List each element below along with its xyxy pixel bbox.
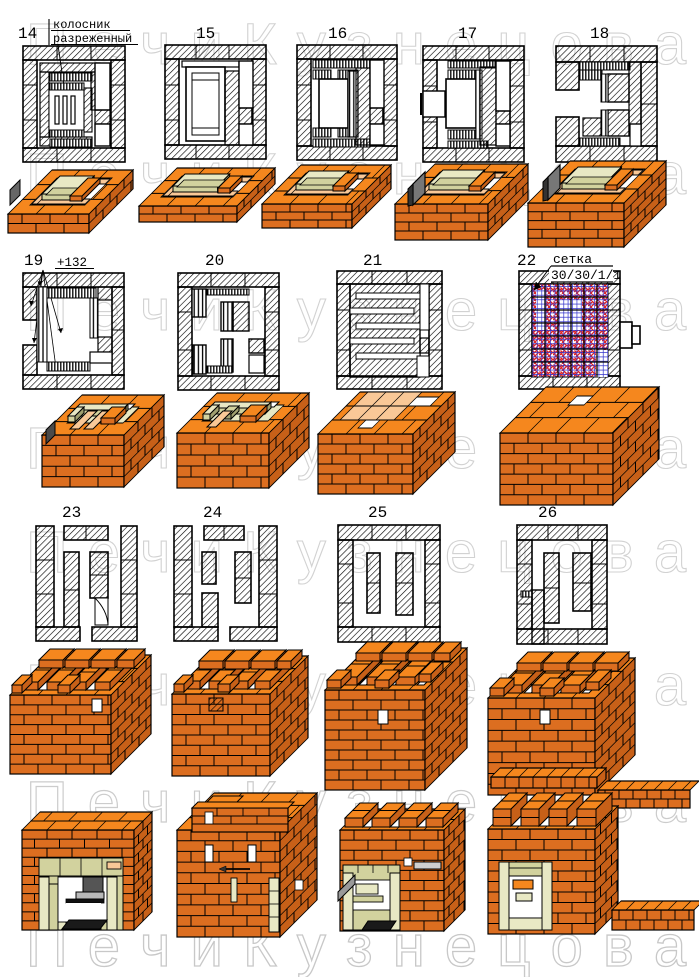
svg-text:30/30/1/1: 30/30/1/1 [551, 268, 621, 283]
svg-text:20: 20 [205, 252, 224, 270]
svg-text:15: 15 [196, 25, 215, 43]
svg-text:22: 22 [517, 252, 536, 270]
svg-text:17: 17 [458, 25, 477, 43]
svg-text:18: 18 [590, 25, 609, 43]
svg-text:21: 21 [363, 252, 382, 270]
svg-text:26: 26 [538, 504, 557, 522]
svg-text:колосник: колосник [53, 18, 111, 32]
svg-text:14: 14 [18, 25, 37, 43]
svg-text:сетка: сетка [553, 252, 592, 267]
svg-text:25: 25 [368, 504, 387, 522]
svg-text:16: 16 [328, 25, 347, 43]
svg-text:разреженный: разреженный [53, 32, 132, 46]
svg-text:19: 19 [24, 252, 43, 270]
svg-text:24: 24 [203, 504, 222, 522]
svg-text:23: 23 [62, 504, 81, 522]
svg-text:+132: +132 [57, 256, 87, 270]
